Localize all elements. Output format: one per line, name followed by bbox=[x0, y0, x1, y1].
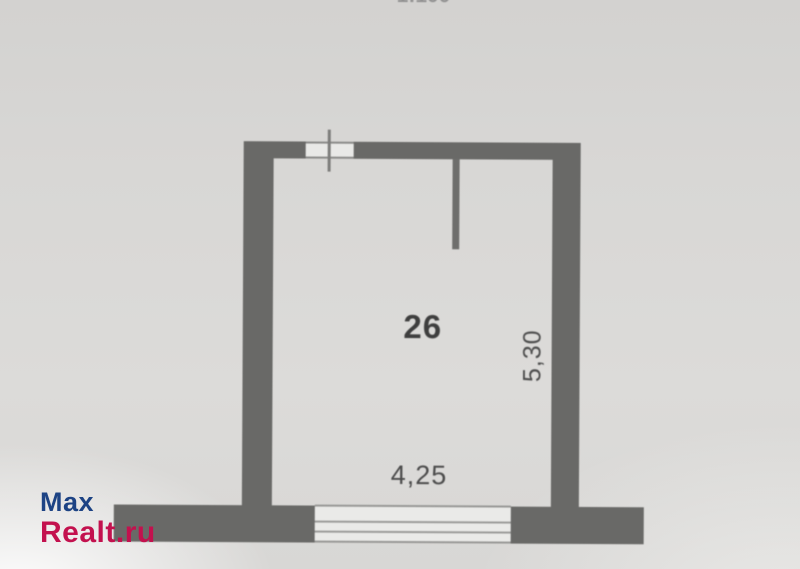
window-top-tick bbox=[328, 130, 331, 172]
floor-plan-drawing: 1:100 26 4,25 5,30 bbox=[0, 0, 800, 569]
window-bottom bbox=[315, 505, 511, 544]
window-glazing-line bbox=[315, 531, 511, 534]
room-number-label: 26 bbox=[392, 308, 454, 346]
watermark-brand-name: Max bbox=[40, 489, 156, 516]
dimension-width-label: 4,25 bbox=[367, 460, 471, 492]
dimension-height-label: 5,30 bbox=[503, 320, 561, 392]
watermark-site-domain: Realt.ru bbox=[40, 518, 156, 548]
scale-label: 1:100 bbox=[389, 0, 457, 8]
wall-left bbox=[242, 141, 274, 507]
wall-top-right-segment bbox=[354, 142, 581, 160]
window-glazing-line bbox=[315, 521, 511, 524]
partition-wall bbox=[452, 159, 459, 249]
watermark: Max Realt.ru bbox=[40, 489, 156, 548]
floor-plan-photo: 1:100 26 4,25 5,30 Max Realt.ru bbox=[0, 0, 800, 569]
